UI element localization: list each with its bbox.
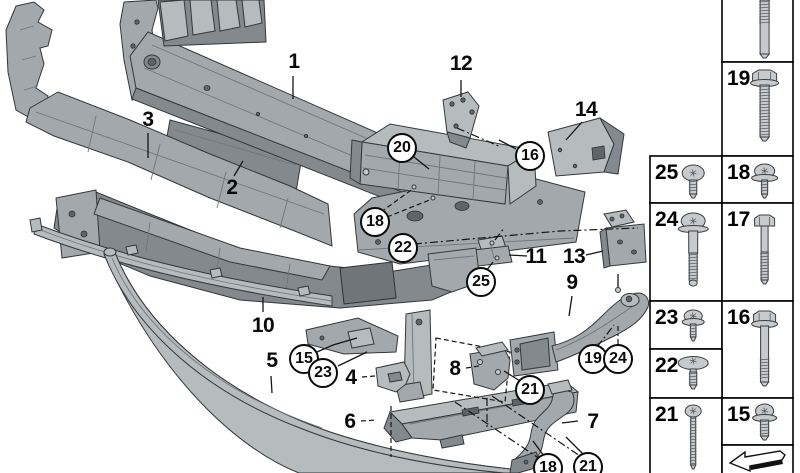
callout-4[interactable]: 4 bbox=[345, 366, 356, 390]
parts-table-cell-24[interactable]: 24 bbox=[650, 203, 722, 301]
parts-table-cell-direction-arrow[interactable] bbox=[722, 445, 793, 473]
circled-callout-22[interactable]: 22 bbox=[388, 233, 418, 263]
circled-callout-24[interactable]: 24 bbox=[603, 344, 633, 374]
part-number-label: 21 bbox=[655, 403, 679, 426]
part-number-label: 23 bbox=[655, 306, 678, 329]
circled-callout-20[interactable]: 20 bbox=[387, 133, 417, 163]
parts-diagram-page: 19251824172316222115 1234567891011121314… bbox=[0, 0, 800, 473]
callout-14[interactable]: 14 bbox=[575, 98, 597, 122]
part-number-label: 19 bbox=[727, 67, 750, 90]
parts-table-cell-stud-bolt-cut[interactable] bbox=[722, 0, 793, 62]
callout-2[interactable]: 2 bbox=[226, 176, 237, 200]
parts-table-cell-25[interactable]: 25 bbox=[650, 156, 722, 203]
circled-callout-23[interactable]: 23 bbox=[308, 358, 338, 388]
part-number-label: 16 bbox=[727, 306, 750, 329]
callout-6[interactable]: 6 bbox=[344, 410, 355, 434]
parts-table-cell-19[interactable]: 19 bbox=[722, 62, 793, 156]
callout-12[interactable]: 12 bbox=[450, 52, 472, 76]
parts-table-cell-16[interactable]: 16 bbox=[722, 301, 793, 398]
callout-9[interactable]: 9 bbox=[566, 271, 577, 295]
callout-13[interactable]: 13 bbox=[563, 245, 585, 269]
part-number-label: 25 bbox=[655, 161, 679, 184]
callout-1[interactable]: 1 bbox=[288, 50, 299, 74]
parts-table-cell-22[interactable]: 22 bbox=[650, 349, 722, 398]
callout-5[interactable]: 5 bbox=[266, 349, 277, 373]
circled-callout-18[interactable]: 18 bbox=[360, 207, 390, 237]
callout-11[interactable]: 11 bbox=[525, 245, 546, 269]
callout-7[interactable]: 7 bbox=[587, 410, 598, 434]
stud-bolt-cut-icon bbox=[759, 0, 770, 58]
part-number-label: 22 bbox=[655, 354, 678, 377]
parts-table-cell-15[interactable]: 15 bbox=[722, 398, 793, 445]
part-number-label: 18 bbox=[727, 161, 751, 184]
circled-callout-16[interactable]: 16 bbox=[515, 141, 545, 171]
parts-table-cell-23[interactable]: 23 bbox=[650, 301, 722, 349]
callout-8[interactable]: 8 bbox=[449, 357, 460, 381]
part-number-label: 17 bbox=[727, 208, 750, 231]
part-number-label: 15 bbox=[727, 403, 751, 426]
part-number-label: 24 bbox=[655, 208, 679, 231]
parts-table-cell-21[interactable]: 21 bbox=[650, 398, 722, 473]
parts-table-cell-18[interactable]: 18 bbox=[722, 156, 793, 203]
circled-callout-21[interactable]: 21 bbox=[515, 375, 545, 405]
callout-3[interactable]: 3 bbox=[142, 108, 153, 132]
callout-10[interactable]: 10 bbox=[252, 314, 274, 338]
parts-table-cell-17[interactable]: 17 bbox=[722, 203, 793, 301]
circled-callout-25[interactable]: 25 bbox=[466, 267, 496, 297]
